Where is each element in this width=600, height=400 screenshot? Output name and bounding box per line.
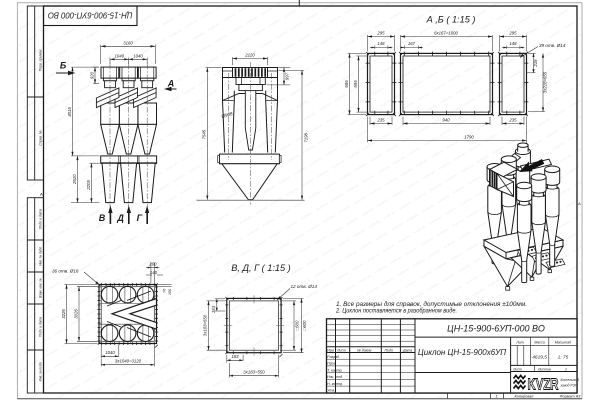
svg-text:1040: 1040 — [115, 53, 125, 58]
svg-text:Утв.: Утв. — [327, 389, 335, 393]
svg-text:Н. контр.: Н. контр. — [327, 382, 343, 386]
svg-text:Циклон ЦН-15-900х6УП: Циклон ЦН-15-900х6УП — [418, 348, 506, 357]
svg-text:Инв. № дубл.: Инв. № дубл. — [39, 246, 43, 266]
svg-text:Подп. и дата: Подп. и дата — [39, 317, 43, 337]
svg-text:Лист: Лист — [512, 367, 522, 371]
svg-text:2. Циклон поставляется в разоб: 2. Циклон поставляется в разобранном вид… — [335, 309, 457, 315]
svg-text:Копировал: Копировал — [515, 395, 535, 399]
svg-text:В, Д, Г ( 1:15 ): В, Д, Г ( 1:15 ) — [231, 263, 290, 273]
svg-text:Масштаб: Масштаб — [555, 341, 572, 345]
svg-text:183: 183 — [231, 354, 239, 359]
svg-text:235: 235 — [508, 118, 517, 123]
svg-text:167: 167 — [408, 41, 416, 46]
svg-text:Котельный: Котельный — [561, 378, 580, 382]
svg-text:Справ. №: Справ. № — [39, 130, 43, 146]
svg-text:997: 997 — [285, 72, 290, 80]
svg-text:4015: 4015 — [67, 107, 72, 117]
svg-text:Пров.: Пров. — [327, 362, 336, 366]
svg-text:ЦН-15-900-6УП-000 ВО: ЦН-15-900-6УП-000 ВО — [447, 324, 545, 334]
svg-text:148: 148 — [377, 41, 385, 46]
svg-text:KVZR: KVZR — [528, 377, 559, 394]
svg-text:3226: 3226 — [61, 309, 66, 319]
svg-text:А: А — [167, 79, 175, 89]
svg-text:Подп: Подп — [385, 349, 393, 353]
svg-text:940: 940 — [442, 118, 450, 123]
svg-text:1790: 1790 — [464, 134, 474, 139]
svg-text:3160: 3160 — [123, 40, 133, 45]
svg-text:1: 1 — [565, 367, 567, 371]
svg-text:39 отв. Ø14: 39 отв. Ø14 — [539, 43, 566, 48]
svg-text:Лит.: Лит. — [515, 341, 524, 345]
svg-text:7198: 7198 — [304, 133, 309, 143]
svg-text:12 отв. Ø14: 12 отв. Ø14 — [291, 284, 318, 289]
svg-text:100: 100 — [168, 288, 172, 295]
svg-text:1: 75: 1: 75 — [558, 355, 569, 361]
svg-text:А: А — [39, 192, 43, 197]
svg-text:235: 235 — [376, 118, 385, 123]
svg-text:Масса: Масса — [534, 341, 544, 345]
svg-text:1. Все размеры для справок, до: 1. Все размеры для справок, допустимые о… — [336, 302, 527, 308]
svg-text:3х183=550: 3х183=550 — [243, 370, 265, 375]
svg-text:Инв. № подл.: Инв. № подл. — [39, 361, 43, 381]
svg-text:183: 183 — [211, 305, 216, 313]
svg-text:36 отв. Ø18: 36 отв. Ø18 — [52, 269, 79, 274]
svg-text:4619,5: 4619,5 — [532, 355, 547, 361]
svg-text:595: 595 — [353, 80, 358, 88]
svg-text:Подп. и дата: Подп. и дата — [39, 209, 43, 229]
svg-text:148: 148 — [509, 41, 517, 46]
svg-text:295: 295 — [508, 31, 517, 36]
svg-text:2205: 2205 — [86, 180, 91, 191]
svg-text:295: 295 — [376, 31, 385, 36]
svg-text:завод РЭП: завод РЭП — [560, 384, 578, 388]
svg-text:Изм: Изм — [327, 349, 334, 353]
svg-text:1: 1 — [495, 395, 497, 399]
svg-text:2120: 2120 — [244, 52, 255, 57]
svg-text:Нач. отд.: Нач. отд. — [327, 375, 343, 379]
svg-text:1040: 1040 — [133, 53, 143, 58]
svg-text:Формат А3: Формат А3 — [560, 395, 582, 399]
svg-text:Г: Г — [137, 213, 143, 223]
svg-text:□500: □500 — [294, 320, 299, 330]
svg-text:Лист: Лист — [336, 349, 346, 353]
svg-text:7545: 7545 — [202, 129, 207, 139]
svg-text:1040: 1040 — [105, 350, 115, 355]
svg-text:218: 218 — [533, 59, 538, 68]
svg-text:Взам. инв. №: Взам. инв. № — [39, 278, 43, 298]
svg-text:Д: Д — [116, 213, 124, 223]
svg-text:3х218=655: 3х218=655 — [542, 71, 547, 93]
svg-text:В: В — [99, 213, 106, 223]
svg-text:ЦН-15-900-6УП-000 ВО: ЦН-15-900-6УП-000 ВО — [48, 10, 133, 19]
svg-text:200: 200 — [148, 261, 157, 266]
svg-text:№ докум: № докум — [357, 349, 372, 353]
svg-text:3х183=550: 3х183=550 — [203, 314, 208, 336]
svg-text:695: 695 — [344, 80, 349, 88]
svg-text:Перв. примен.: Перв. примен. — [39, 49, 43, 72]
svg-text:Б: Б — [60, 61, 67, 71]
svg-text:А: А — [577, 201, 581, 206]
svg-text:Т. контр.: Т. контр. — [327, 368, 342, 372]
svg-text:2610: 2610 — [72, 174, 77, 185]
svg-text:А ,Б ( 1:15 ): А ,Б ( 1:15 ) — [426, 15, 476, 25]
svg-text:Дата: Дата — [402, 349, 412, 353]
svg-text:920: 920 — [90, 71, 95, 79]
svg-text:□600: □600 — [302, 320, 307, 330]
svg-text:140: 140 — [150, 270, 158, 275]
svg-text:Разраб.: Разраб. — [327, 355, 340, 359]
svg-text:Листов: Листов — [537, 367, 551, 371]
svg-text:3х1040=3120: 3х1040=3120 — [115, 359, 142, 364]
svg-text:6х167=1000: 6х167=1000 — [434, 31, 458, 36]
svg-text:3026: 3026 — [73, 309, 78, 319]
